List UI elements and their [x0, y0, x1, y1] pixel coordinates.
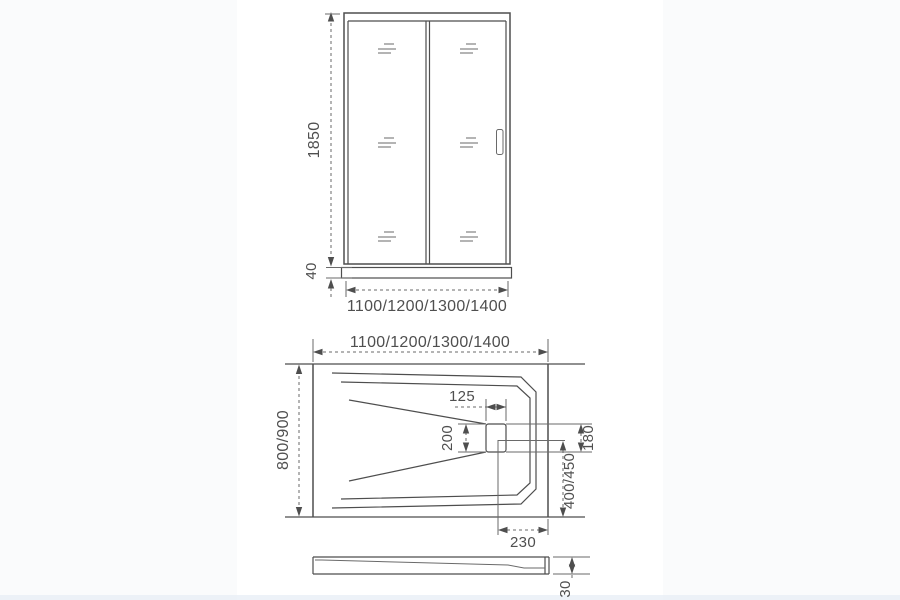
arrow-down-icon [463, 443, 469, 453]
arrow-up-icon [328, 12, 334, 22]
dim-tray-depth: 800/900 [275, 365, 302, 517]
dim-label-sill-height: 40 [303, 262, 320, 279]
arrow-up-icon [296, 365, 302, 375]
arrow-down-icon [569, 565, 575, 575]
front-view-door: 1850 40 1100/1200/1300/1400 [303, 12, 512, 315]
door-bottom-sill [342, 268, 512, 279]
dim-label-tray-depth: 800/900 [275, 410, 292, 470]
dim-sill-height: 40 [303, 262, 352, 299]
side-view-profile: 30 [313, 557, 590, 598]
arrow-down-icon [296, 507, 302, 517]
arrow-left-icon [498, 527, 508, 533]
dim-tray-width: 1100/1200/1300/1400 [313, 334, 548, 362]
drain-reference-corner [498, 441, 565, 536]
dim-label-door-width: 1100/1200/1300/1400 [347, 298, 507, 315]
dimension-drawing: 1850 40 1100/1200/1300/1400 [0, 0, 900, 600]
arrow-right-icon [539, 527, 549, 533]
dim-door-width: 1100/1200/1300/1400 [346, 281, 508, 315]
dim-label-drain-height: 200 [439, 425, 456, 451]
glass-marks-left-panel [378, 44, 396, 241]
dim-label-drain-corner-offset: 230 [510, 534, 536, 551]
arrow-up-icon [463, 424, 469, 434]
top-view-tray: 1100/1200/1300/1400 800/900 125 [275, 334, 597, 551]
glass-marks-right-panel [460, 44, 478, 241]
arrow-left-icon [486, 404, 496, 410]
glass-mark-icon [460, 44, 478, 53]
dim-tray-height: 30 [553, 557, 590, 598]
glass-mark-icon [378, 138, 396, 147]
arrow-right-icon [499, 287, 509, 293]
arrow-right-icon [497, 404, 507, 410]
dim-drain-height: 200 [439, 424, 486, 452]
dim-drain-corner-offset: 230 [498, 519, 548, 551]
arrow-left-icon [346, 287, 356, 293]
dim-door-height: 1850 [306, 12, 340, 267]
dim-drain-offset-side: 180 [506, 424, 597, 452]
arrow-up-icon [328, 279, 334, 289]
dim-label-tray-height: 30 [557, 580, 574, 597]
glass-mark-icon [460, 138, 478, 147]
arrow-right-icon [539, 349, 549, 355]
dim-label-drain-offset-back: 400/450 [561, 453, 578, 509]
dim-label-drain-offset-side: 180 [580, 425, 597, 451]
profile-inner-slope [315, 560, 545, 568]
door-outer-frame [344, 13, 510, 264]
arrow-up-icon [560, 441, 566, 451]
glass-mark-icon [460, 232, 478, 241]
drain-pocket [486, 424, 506, 452]
dim-drain-width: 125 [449, 388, 506, 421]
dim-label-drain-width: 125 [449, 388, 475, 405]
technical-drawing-page: 1850 40 1100/1200/1300/1400 [0, 0, 900, 600]
arrow-left-icon [313, 349, 323, 355]
glass-mark-icon [378, 44, 396, 53]
dim-label-tray-width: 1100/1200/1300/1400 [350, 334, 510, 351]
glass-mark-icon [378, 232, 396, 241]
arrow-down-icon [328, 257, 334, 267]
dim-label-door-height: 1850 [306, 122, 323, 159]
door-handle [497, 130, 504, 155]
tray-slope-line-bottom [349, 452, 486, 481]
